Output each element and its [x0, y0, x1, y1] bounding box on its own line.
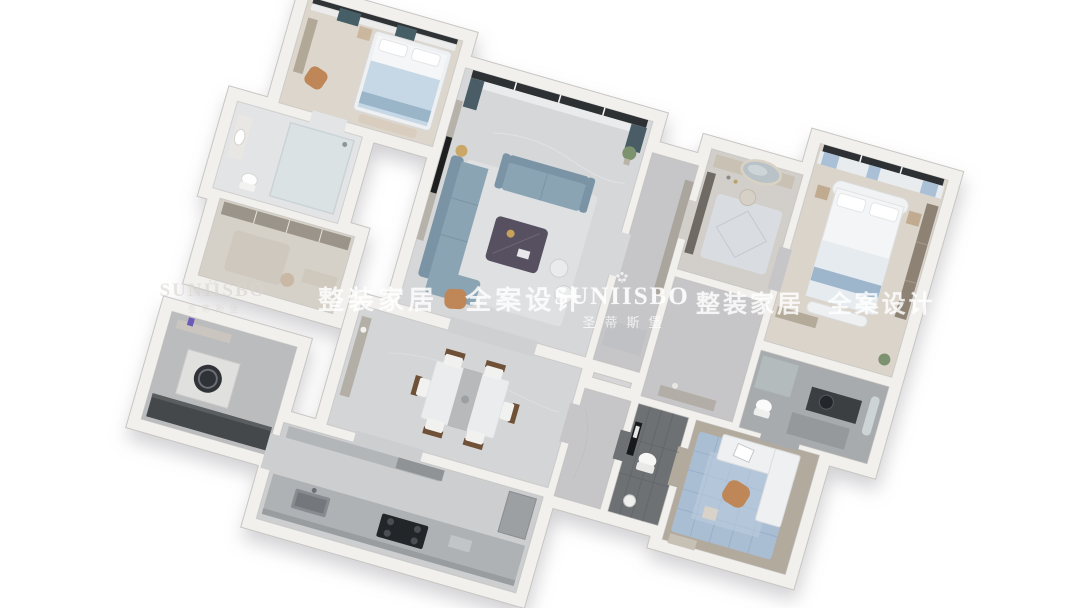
screenshot-canvas: SUNIISBO 圣蒂斯堡 整装家居 全案设计 SUNIISBO 圣蒂斯堡 整装… — [0, 0, 1080, 608]
lounge-chair-tan — [444, 289, 467, 310]
floor-plan-svg — [0, 0, 1080, 608]
